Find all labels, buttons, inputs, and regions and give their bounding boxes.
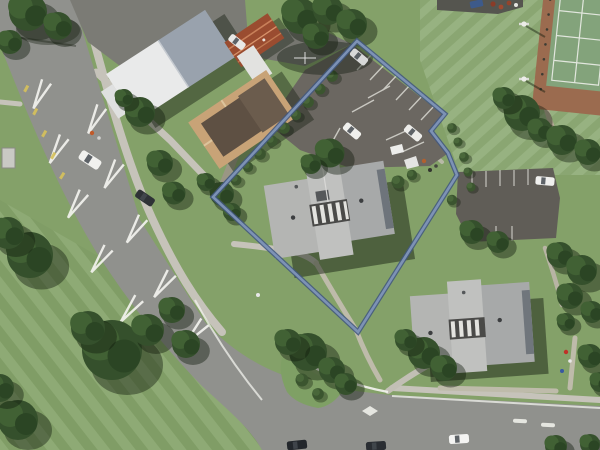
- red-object: [499, 5, 504, 10]
- east-west-path: [440, 388, 556, 391]
- bus-stop-path: [0, 102, 20, 104]
- red-object: [507, 1, 512, 6]
- white-black-car: [449, 434, 470, 444]
- white-car: [535, 176, 555, 186]
- aerial-map[interactable]: [0, 0, 600, 450]
- lane-dash: [513, 419, 527, 424]
- red-object: [490, 1, 495, 6]
- dark-car: [366, 441, 387, 450]
- lane-dash: [541, 423, 555, 428]
- white-object: [514, 3, 518, 7]
- tennis-courts: [532, 0, 600, 116]
- bus-shelter: [2, 148, 15, 168]
